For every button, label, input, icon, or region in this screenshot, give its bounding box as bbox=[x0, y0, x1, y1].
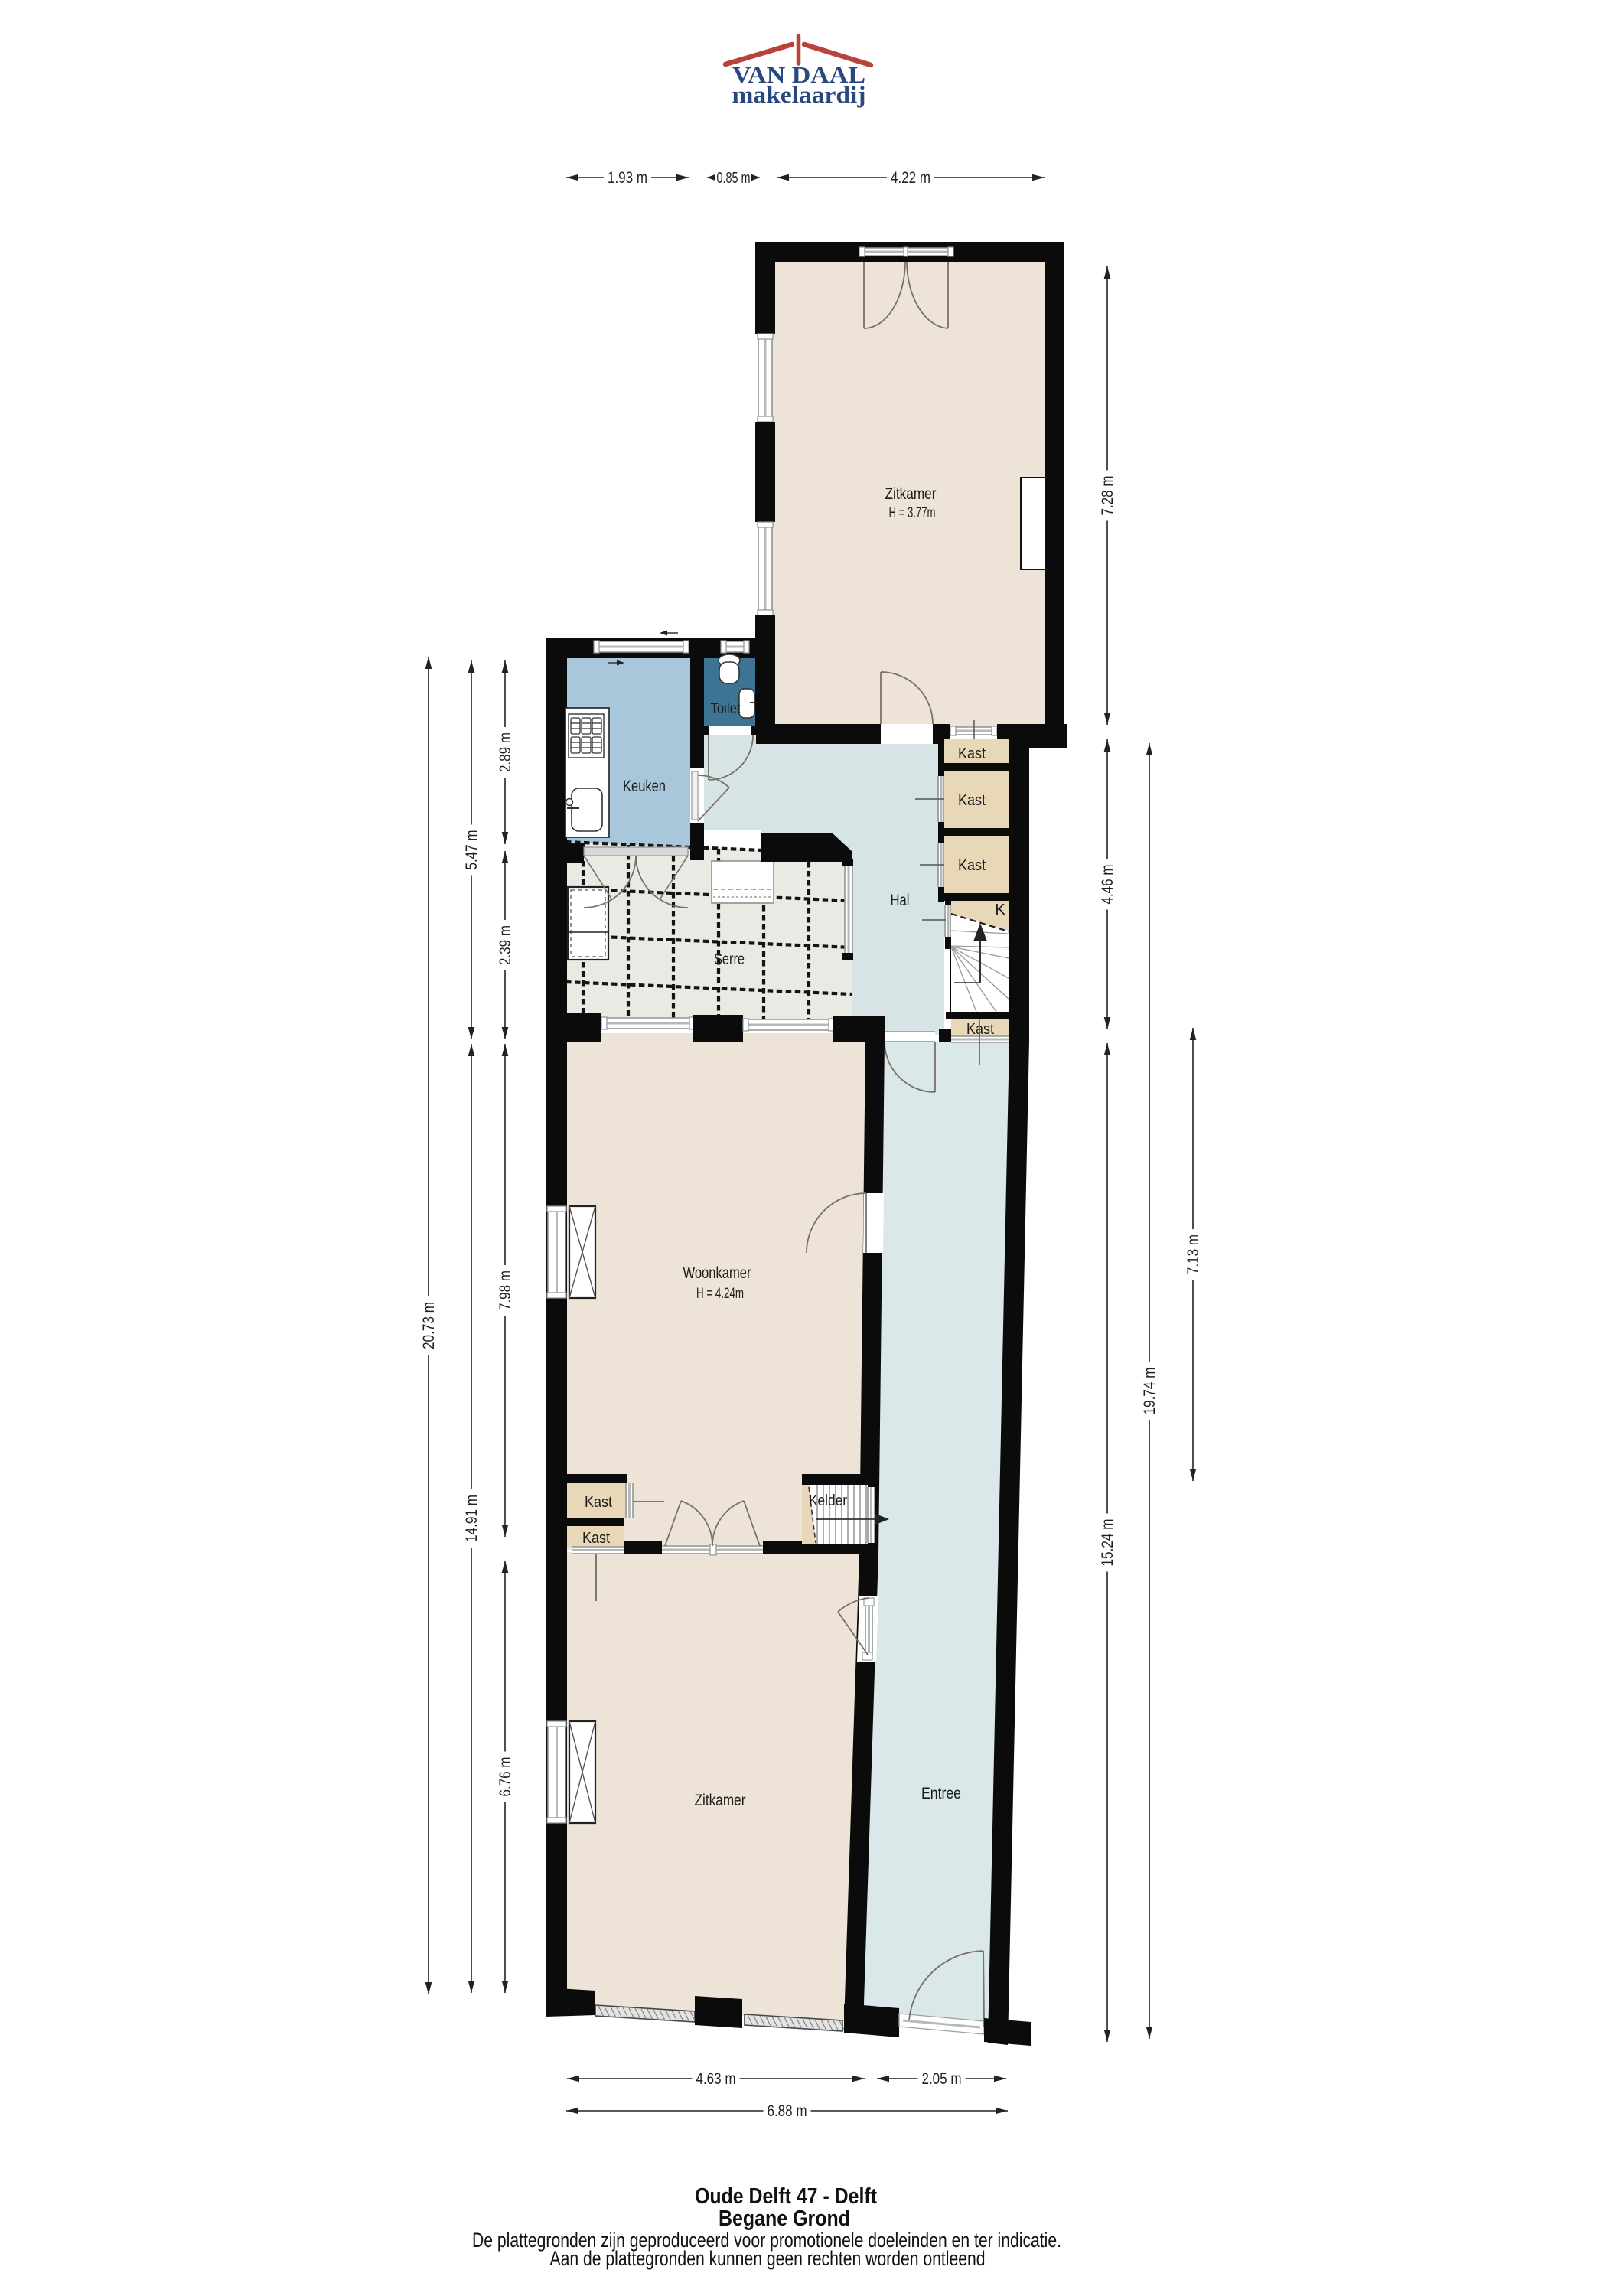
svg-text:Woonkamer: Woonkamer bbox=[683, 1264, 751, 1282]
svg-text:4.46 m: 4.46 m bbox=[1099, 865, 1116, 905]
svg-text:Serre: Serre bbox=[714, 951, 745, 968]
svg-text:4.22 m: 4.22 m bbox=[891, 169, 930, 187]
svg-text:4.63 m: 4.63 m bbox=[696, 2070, 736, 2088]
svg-text:Begane Grond: Begane Grond bbox=[719, 2206, 850, 2231]
svg-text:Toilet: Toilet bbox=[711, 701, 741, 717]
svg-text:H = 4.24m: H = 4.24m bbox=[696, 1286, 744, 1302]
svg-text:19.74 m: 19.74 m bbox=[1141, 1368, 1159, 1415]
svg-text:0.85 m: 0.85 m bbox=[717, 170, 751, 187]
svg-text:Entree: Entree bbox=[921, 1785, 961, 1802]
svg-text:Aan de plattegronden kunnen ge: Aan de plattegronden kunnen geen rechten… bbox=[550, 2247, 986, 2270]
svg-text:2.89 m: 2.89 m bbox=[497, 732, 514, 772]
svg-text:5.47 m: 5.47 m bbox=[463, 830, 481, 870]
svg-text:Kast: Kast bbox=[958, 745, 986, 762]
svg-text:Kast: Kast bbox=[958, 857, 986, 874]
svg-text:Keuken: Keuken bbox=[623, 778, 666, 795]
svg-text:2.39 m: 2.39 m bbox=[497, 925, 514, 965]
svg-text:Kast: Kast bbox=[958, 792, 986, 809]
svg-text:14.91 m: 14.91 m bbox=[463, 1495, 481, 1542]
svg-text:Zitkamer: Zitkamer bbox=[885, 485, 937, 503]
svg-text:H = 3.77m: H = 3.77m bbox=[889, 505, 936, 521]
svg-text:Kast: Kast bbox=[966, 1021, 994, 1038]
svg-text:1.93 m: 1.93 m bbox=[608, 169, 647, 187]
svg-text:20.73 m: 20.73 m bbox=[420, 1302, 438, 1349]
svg-text:6.88 m: 6.88 m bbox=[768, 2102, 807, 2120]
svg-text:2.05 m: 2.05 m bbox=[922, 2070, 962, 2088]
svg-text:K: K bbox=[995, 902, 1005, 918]
svg-text:makelaardij: makelaardij bbox=[732, 81, 866, 108]
svg-text:6.76 m: 6.76 m bbox=[497, 1757, 514, 1797]
svg-text:Hal: Hal bbox=[891, 892, 910, 909]
svg-text:15.24 m: 15.24 m bbox=[1099, 1519, 1116, 1567]
svg-text:Oude Delft 47 - Delft: Oude Delft 47 - Delft bbox=[695, 2184, 877, 2209]
svg-text:Kelder: Kelder bbox=[809, 1492, 847, 1509]
svg-text:Zitkamer: Zitkamer bbox=[695, 1792, 746, 1809]
svg-text:Kast: Kast bbox=[585, 1494, 612, 1511]
svg-text:7.98 m: 7.98 m bbox=[497, 1270, 514, 1310]
svg-text:Kast: Kast bbox=[582, 1530, 610, 1547]
svg-text:7.13 m: 7.13 m bbox=[1185, 1234, 1202, 1274]
svg-text:7.28 m: 7.28 m bbox=[1099, 476, 1116, 516]
